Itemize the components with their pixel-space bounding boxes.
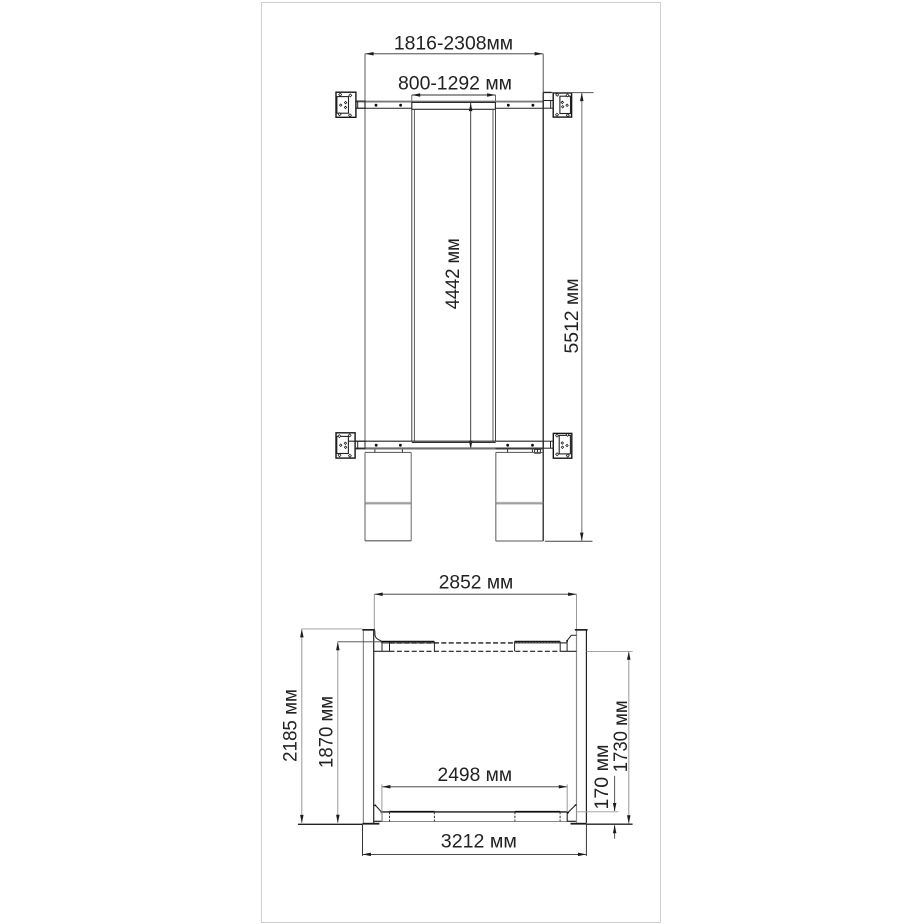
svg-text:5512 мм: 5512 мм <box>562 279 583 354</box>
svg-text:2498 мм: 2498 мм <box>438 765 513 786</box>
svg-text:2185 мм: 2185 мм <box>281 689 302 762</box>
svg-text:800-1292 мм: 800-1292 мм <box>398 74 512 95</box>
svg-text:1816-2308мм: 1816-2308мм <box>394 34 513 55</box>
svg-text:1870 мм: 1870 мм <box>316 696 337 768</box>
svg-text:1730 мм: 1730 мм <box>611 700 632 772</box>
svg-text:170 мм: 170 мм <box>592 745 613 810</box>
svg-text:2852 мм: 2852 мм <box>439 572 514 593</box>
svg-text:3212 мм: 3212 мм <box>441 832 517 853</box>
svg-text:4442 мм: 4442 мм <box>443 238 464 309</box>
